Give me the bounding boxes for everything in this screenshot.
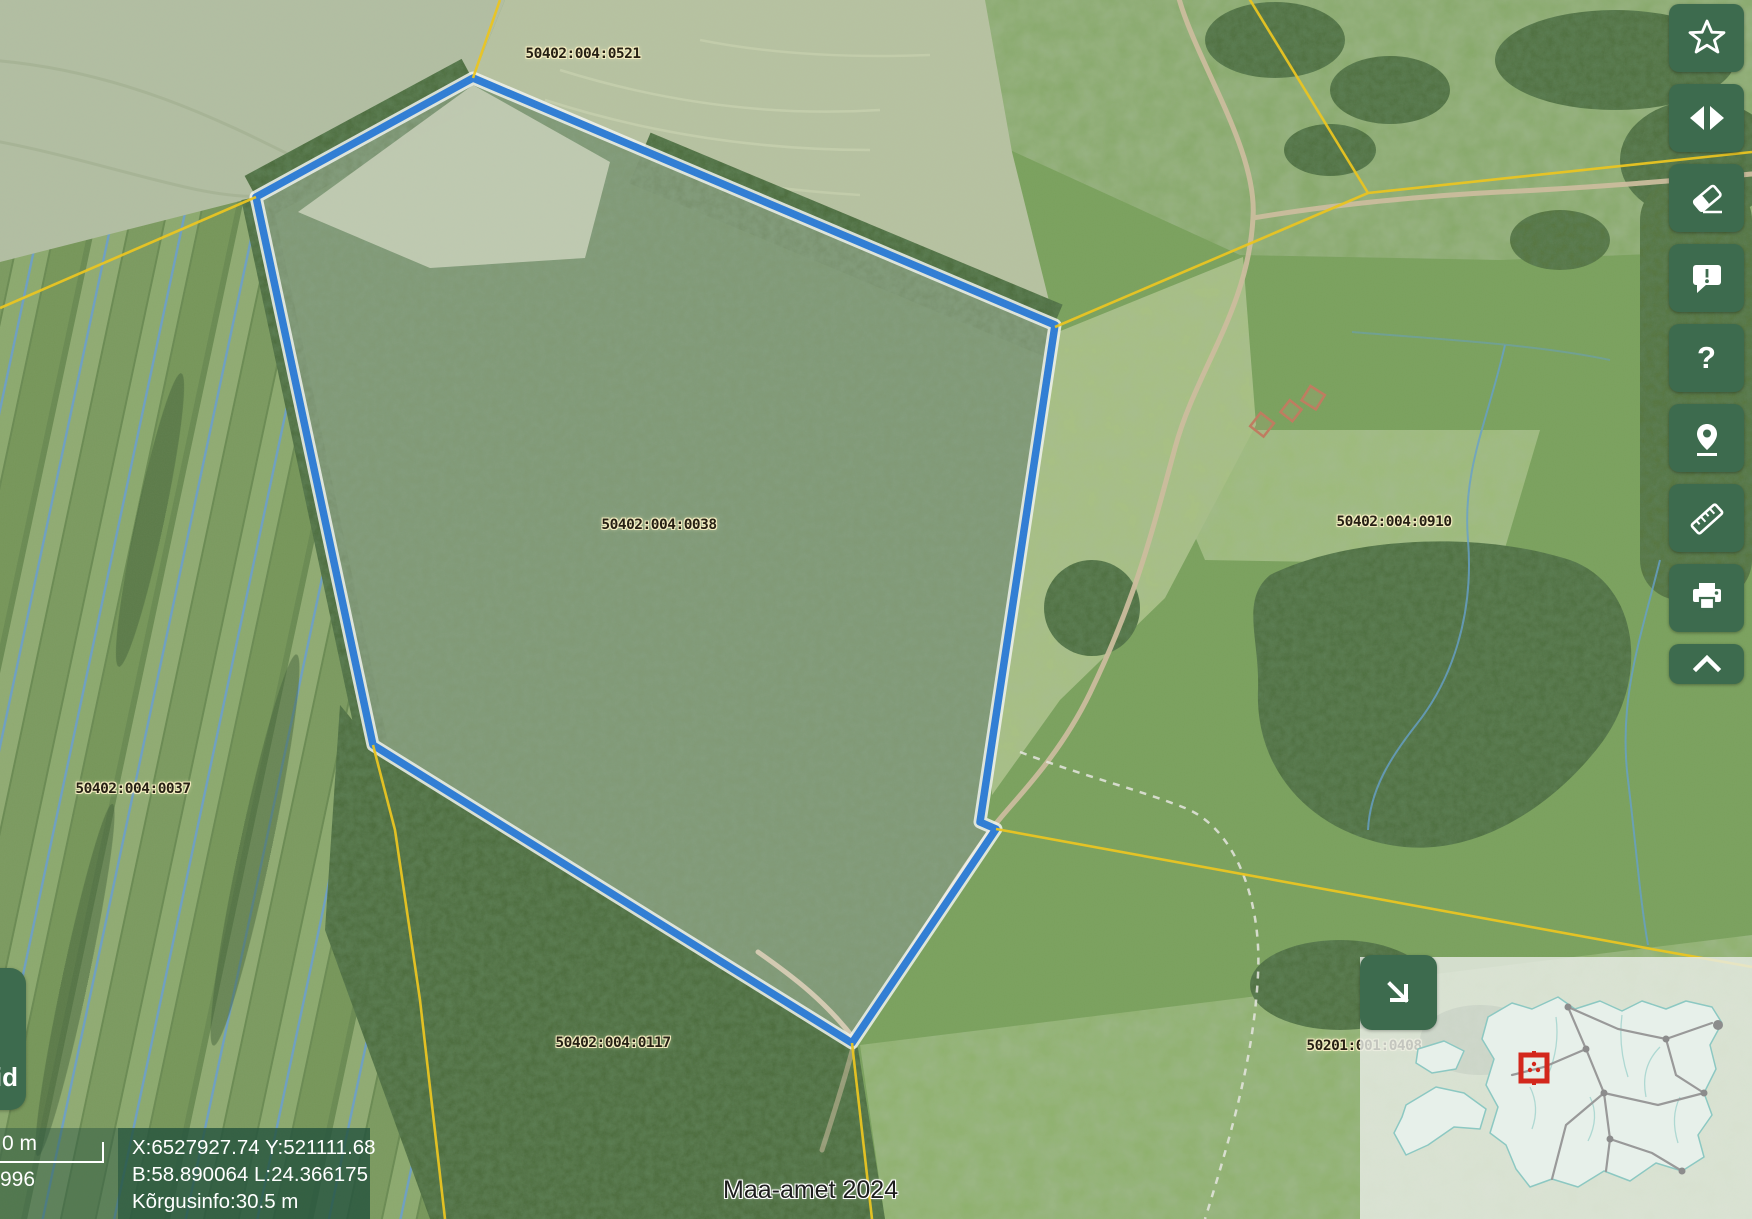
favorites-button[interactable] — [1669, 4, 1744, 72]
chevron-up-icon — [1687, 652, 1727, 676]
map-application: 50402:004:0521 50402:004:0038 50402:004:… — [0, 0, 1752, 1219]
printer-icon — [1687, 578, 1727, 618]
feedback-bubble-icon — [1687, 258, 1727, 298]
scale-bar-line — [0, 1142, 104, 1163]
map-attribution: Maa-amet 2024 — [723, 1176, 898, 1205]
side-tab-kaardid[interactable]: id — [0, 968, 26, 1110]
measure-button[interactable] — [1669, 484, 1744, 552]
swipe-arrows-icon — [1687, 98, 1727, 138]
elevation-info: Kõrgusinfo:30.5 m — [132, 1188, 370, 1215]
scale-bar: 0 m 996 — [0, 1128, 118, 1219]
scale-bottom-label: 996 — [0, 1168, 35, 1192]
parcel-label: 50402:004:0037 — [75, 781, 190, 797]
eraser-icon — [1687, 178, 1727, 218]
print-button[interactable] — [1669, 564, 1744, 632]
coordinate-bl: B:58.890064 L:24.366175 — [132, 1161, 370, 1188]
clear-map-button[interactable] — [1669, 164, 1744, 232]
ruler-icon — [1687, 498, 1727, 538]
help-button[interactable]: ? — [1669, 324, 1744, 392]
question-mark-icon: ? — [1697, 340, 1716, 376]
locate-button[interactable] — [1669, 404, 1744, 472]
location-pin-icon — [1687, 418, 1727, 458]
feedback-button[interactable] — [1669, 244, 1744, 312]
compare-swipe-button[interactable] — [1669, 84, 1744, 152]
collapse-toolbar-button[interactable] — [1669, 644, 1744, 684]
coordinate-info-box: X:6527927.74 Y:521111.68 B:58.890064 L:2… — [118, 1128, 370, 1219]
parcel-label: 50402:004:0521 — [525, 46, 640, 62]
side-tab-label: id — [0, 1062, 18, 1093]
star-icon — [1687, 18, 1727, 58]
coordinate-xy: X:6527927.74 Y:521111.68 — [132, 1134, 370, 1161]
parcel-label: 50402:004:0038 — [601, 517, 716, 533]
arrow-down-right-icon — [1379, 973, 1419, 1013]
overview-collapse-button[interactable] — [1360, 955, 1437, 1030]
parcel-label: 50402:004:0117 — [555, 1035, 670, 1051]
parcel-label: 50402:004:0910 — [1336, 514, 1451, 530]
